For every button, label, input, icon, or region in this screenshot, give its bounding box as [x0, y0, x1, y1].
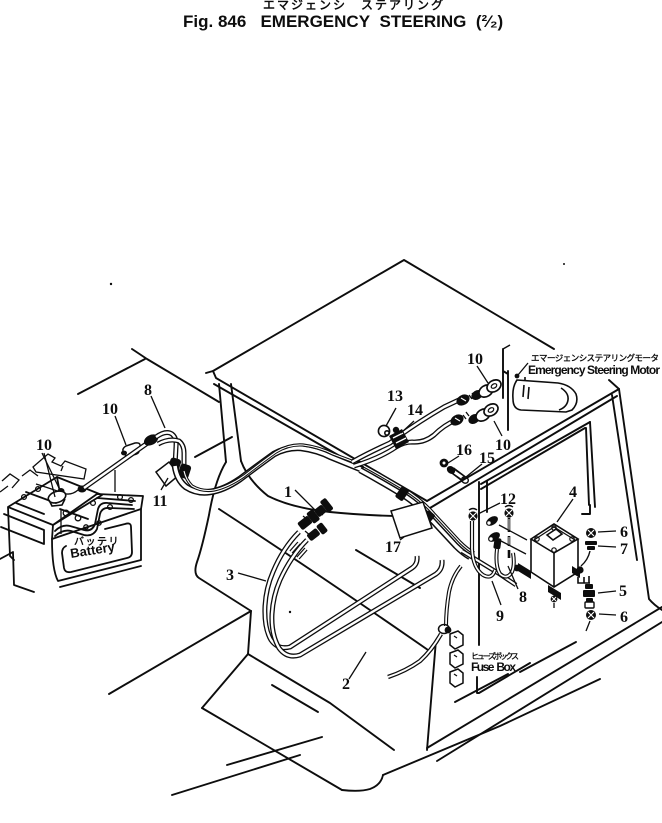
svg-text:1: 1 [284, 484, 292, 501]
svg-text:11: 11 [152, 493, 167, 510]
svg-text:13: 13 [387, 388, 403, 405]
svg-text:エマジェンシ ステアリング: エマジェンシ ステアリング [263, 0, 445, 12]
svg-text:10: 10 [36, 437, 52, 454]
svg-text:8: 8 [519, 589, 527, 606]
svg-text:7: 7 [620, 541, 628, 558]
svg-text:15: 15 [479, 450, 495, 467]
svg-text:6: 6 [620, 609, 628, 626]
svg-text:3: 3 [226, 567, 234, 584]
svg-text:6: 6 [620, 524, 628, 541]
svg-text:12: 12 [500, 491, 516, 508]
svg-text:4: 4 [569, 484, 577, 501]
svg-text:エマージェンシステアリングモータ: エマージェンシステアリングモータ [531, 353, 659, 363]
svg-text:16: 16 [456, 442, 472, 459]
svg-text:10: 10 [495, 437, 511, 454]
svg-text:10: 10 [102, 401, 118, 418]
svg-text:17: 17 [385, 539, 401, 556]
svg-text:Emergency Steering Motor: Emergency Steering Motor [528, 363, 660, 377]
svg-text:8: 8 [144, 382, 152, 399]
svg-text:14: 14 [407, 402, 423, 419]
svg-text:9: 9 [496, 608, 504, 625]
svg-text:10: 10 [467, 351, 483, 368]
svg-text:2: 2 [342, 676, 350, 693]
svg-text:5: 5 [619, 583, 627, 600]
svg-text:Fig. 846 EMERGENCY STEERING: Fig. 846 EMERGENCY STEERING (²⁄₂) [183, 12, 503, 31]
svg-text:Fuse Box: Fuse Box [471, 660, 516, 674]
